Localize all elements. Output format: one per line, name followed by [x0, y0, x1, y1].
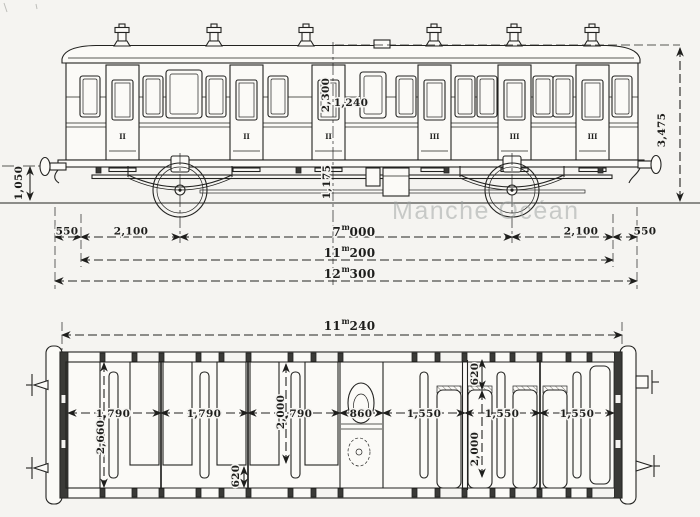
dim-overall-length-whole: 12 [324, 267, 341, 281]
compartment-window [455, 76, 475, 117]
end-bench [590, 366, 610, 484]
bench-slat [291, 372, 300, 478]
compartment-door [106, 65, 139, 172]
compartment-window [143, 76, 163, 117]
brake-cylinder [366, 168, 380, 186]
dim-wheelbase-whole: 7 [332, 225, 341, 239]
compartment-window [268, 76, 288, 117]
compartment-window [477, 76, 497, 117]
saloon-window [166, 70, 202, 118]
dim-wheelbase-frac: 000 [350, 225, 376, 239]
dim-buffer-right: 550 [634, 226, 657, 238]
carriage-drawing: II II II III III III [0, 0, 700, 517]
compartment-window [80, 76, 100, 117]
dim-aisle-left: 620 [230, 465, 242, 488]
bench-slat [109, 372, 118, 478]
end-wall-left [60, 352, 68, 498]
compartment-window [612, 76, 632, 117]
dim-overall-length-frac: 300 [350, 267, 376, 281]
door-class-mark: III [588, 132, 598, 141]
dim-seat-length-right: 2,000 [469, 432, 481, 466]
dim-seat-length-left: 2,000 [275, 395, 287, 429]
seat [437, 390, 461, 488]
dim-interior-width: 2,660 [95, 420, 107, 454]
roof-lamp-box [374, 40, 390, 48]
compartment-door [418, 65, 451, 172]
dim-overall-length: 12 m 300 [324, 264, 376, 281]
dim-plan-length: 11 m 240 [324, 316, 376, 333]
compartment-window [206, 76, 226, 117]
dim-compartment-5: 1,550 [485, 408, 519, 420]
end-wall-right [614, 352, 622, 498]
door-class-mark: III [510, 132, 520, 141]
dim-bay-width: 1,240 [334, 97, 368, 109]
door-class-mark: II [243, 132, 250, 141]
dim-toilet-width: 860 [350, 408, 373, 420]
dim-buffer-left: 550 [56, 226, 79, 238]
dim-body-length-whole: 11 [324, 246, 341, 260]
dim-compartment-6: 1,550 [560, 408, 594, 420]
compartment-door [576, 65, 609, 172]
door-class-mark: II [325, 132, 332, 141]
blueprint-sheet: II II II III III III [0, 0, 700, 517]
dim-plan-length-whole: 11 [324, 319, 341, 333]
compartment-window [533, 76, 553, 117]
dim-compartment-2: 1,790 [187, 408, 221, 420]
bench-slat [497, 372, 505, 478]
battery-box [383, 168, 409, 196]
bench-slat [200, 372, 209, 478]
plan-body [26, 346, 660, 504]
bench-slat [420, 372, 428, 478]
dim-plan-length-frac: 240 [350, 319, 376, 333]
carriage-bodyside: II II II III III III [66, 63, 638, 172]
dim-underframe-height: 1,175 [321, 165, 333, 199]
watermark: Manche Océan [392, 197, 580, 225]
seat [543, 390, 567, 488]
compartment-window [553, 76, 573, 117]
bench-slat [573, 372, 581, 478]
footboard [92, 175, 612, 179]
dim-overhang-right: 2,100 [564, 226, 598, 238]
dim-compartment-4: 1,550 [407, 408, 441, 420]
seat [513, 390, 537, 488]
dim-overhang-left: 2,100 [114, 226, 148, 238]
door-class-mark: III [430, 132, 440, 141]
dim-door-height: 2,300 [320, 78, 332, 112]
dim-compartment-1: 1,790 [96, 408, 130, 420]
dim-body-length: 11 m 200 [324, 243, 376, 260]
door-class-mark: II [119, 132, 126, 141]
dim-overall-height: 3,475 [656, 113, 668, 147]
dim-buffer-height: 1,050 [13, 166, 25, 200]
dim-aisle-right: 620 [469, 363, 481, 386]
compartment-window [396, 76, 416, 117]
dim-body-length-frac: 200 [350, 246, 376, 260]
compartment-door [230, 65, 263, 172]
dim-wheelbase: 7 m 000 [332, 222, 375, 239]
